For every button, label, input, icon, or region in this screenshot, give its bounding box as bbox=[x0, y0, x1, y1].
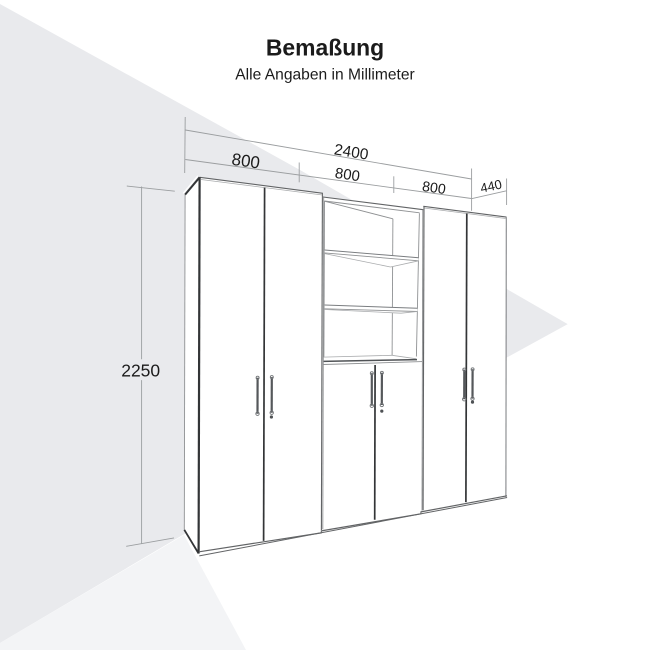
svg-text:800: 800 bbox=[230, 150, 261, 173]
svg-text:800: 800 bbox=[421, 179, 447, 198]
svg-text:Bemaßung: Bemaßung bbox=[266, 35, 384, 61]
svg-text:2250: 2250 bbox=[121, 361, 160, 381]
svg-text:Alle Angaben in Millimeter: Alle Angaben in Millimeter bbox=[235, 67, 414, 84]
svg-text:800: 800 bbox=[334, 165, 361, 185]
